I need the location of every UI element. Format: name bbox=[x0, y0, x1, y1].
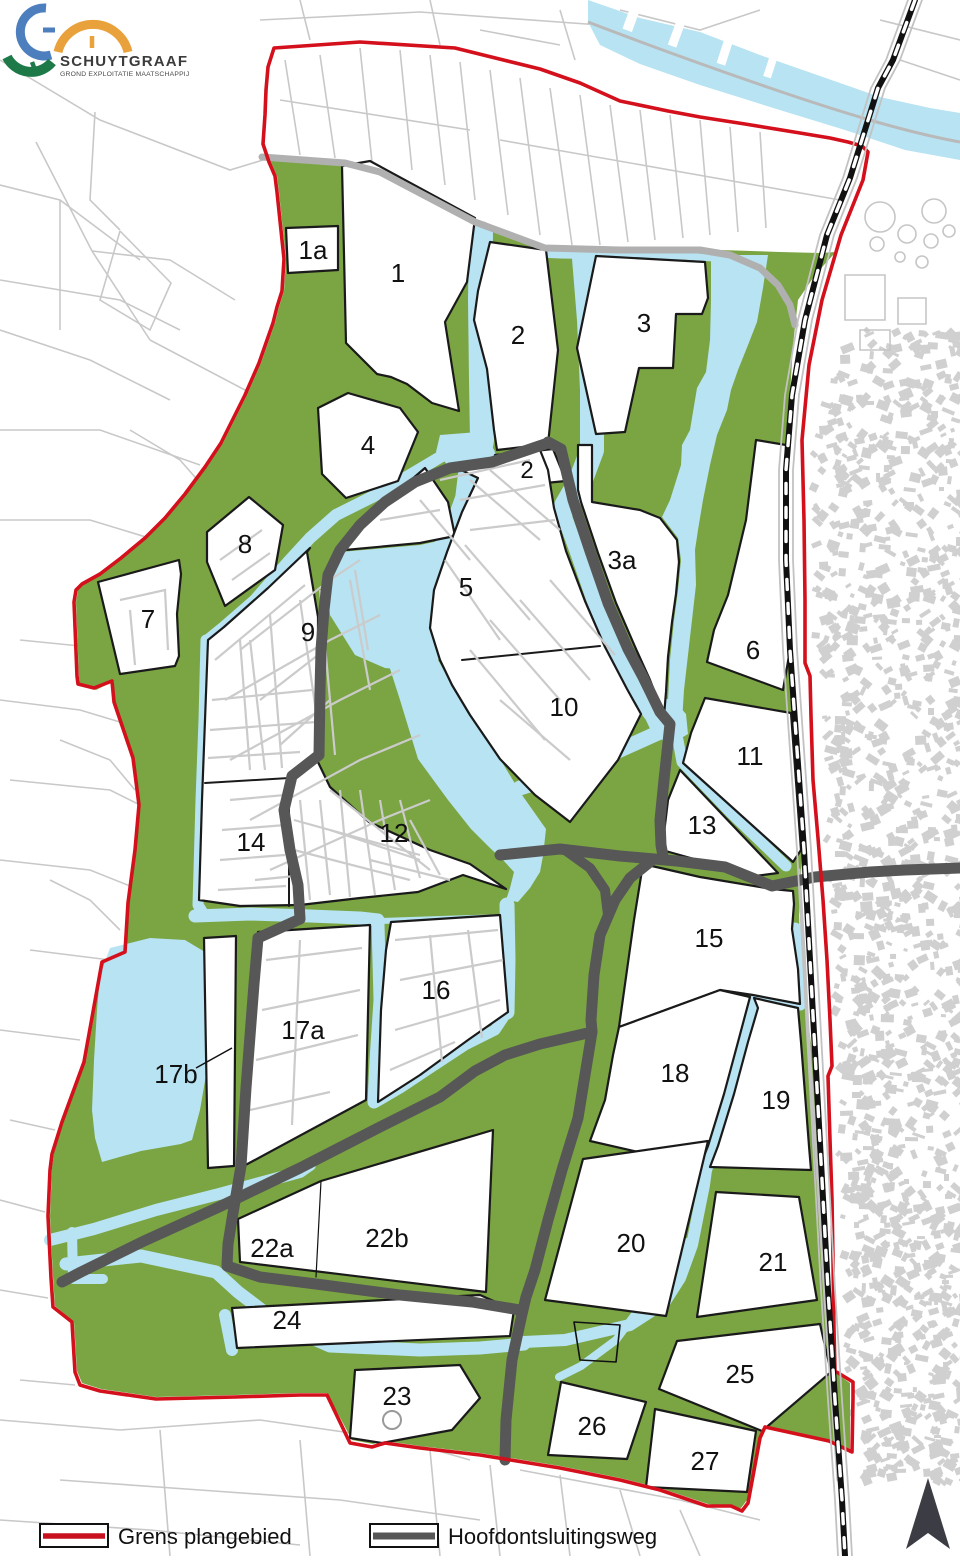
svg-text:17a: 17a bbox=[281, 1015, 325, 1045]
svg-text:9: 9 bbox=[301, 617, 315, 647]
svg-text:22b: 22b bbox=[365, 1223, 408, 1253]
svg-text:2: 2 bbox=[511, 320, 525, 350]
svg-text:22a: 22a bbox=[250, 1233, 294, 1263]
svg-text:14: 14 bbox=[237, 827, 266, 857]
svg-text:3a: 3a bbox=[608, 545, 637, 575]
svg-text:13: 13 bbox=[688, 810, 717, 840]
svg-text:5: 5 bbox=[459, 572, 473, 602]
svg-text:27: 27 bbox=[691, 1446, 720, 1476]
svg-text:15: 15 bbox=[695, 923, 724, 953]
svg-text:7: 7 bbox=[141, 604, 155, 634]
svg-text:10: 10 bbox=[550, 692, 579, 722]
svg-text:23: 23 bbox=[383, 1381, 412, 1411]
svg-text:11: 11 bbox=[737, 741, 764, 771]
svg-text:16: 16 bbox=[422, 975, 451, 1005]
svg-text:Hoofdontsluitingsweg: Hoofdontsluitingsweg bbox=[448, 1524, 657, 1549]
svg-text:25: 25 bbox=[726, 1359, 755, 1389]
svg-text:20: 20 bbox=[617, 1228, 646, 1258]
svg-text:2: 2 bbox=[520, 457, 533, 484]
svg-text:17b: 17b bbox=[154, 1059, 197, 1089]
svg-text:4: 4 bbox=[361, 430, 375, 460]
svg-text:Grens plangebied: Grens plangebied bbox=[118, 1524, 292, 1549]
svg-text:GROND EXPLOITATIE MAATSCHAPPIJ: GROND EXPLOITATIE MAATSCHAPPIJ bbox=[60, 71, 190, 78]
svg-text:1: 1 bbox=[391, 258, 405, 288]
svg-text:3: 3 bbox=[637, 308, 651, 338]
svg-text:21: 21 bbox=[759, 1247, 788, 1277]
svg-text:12: 12 bbox=[380, 818, 409, 848]
svg-text:26: 26 bbox=[578, 1411, 607, 1441]
svg-text:SCHUYTGRAAF: SCHUYTGRAAF bbox=[60, 53, 188, 70]
svg-text:18: 18 bbox=[661, 1058, 690, 1088]
svg-text:24: 24 bbox=[273, 1305, 302, 1335]
svg-text:1a: 1a bbox=[299, 235, 328, 265]
svg-text:6: 6 bbox=[746, 635, 760, 665]
svg-text:19: 19 bbox=[762, 1085, 791, 1115]
svg-text:8: 8 bbox=[238, 529, 252, 559]
